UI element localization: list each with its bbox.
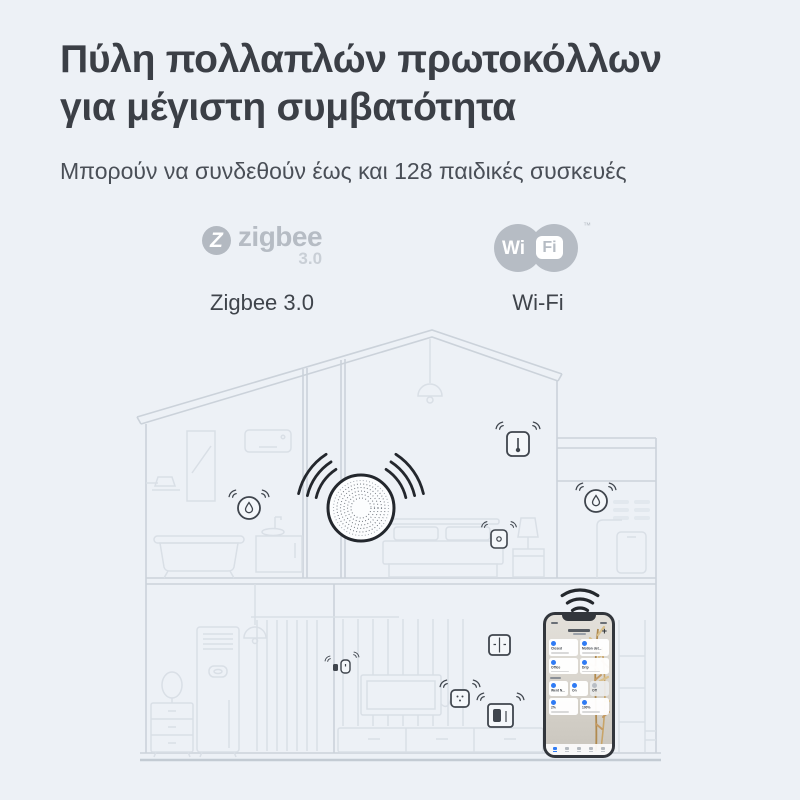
protocol-zigbee: Z zigbee 3.0 Zigbee 3.0: [182, 224, 342, 316]
water-leak-sensor-bathroom: [229, 490, 269, 519]
sink-bowl: [262, 529, 284, 536]
app-header: +: [549, 627, 609, 637]
device-icon: [551, 700, 556, 705]
tab-automation: [577, 747, 581, 753]
wifi-trademark: ™: [583, 221, 591, 230]
tab-scenes: [589, 747, 593, 753]
smart-cube-device: [477, 693, 524, 727]
water-leak-sensor-annex: [576, 483, 616, 512]
sensor-link-line: [441, 698, 451, 706]
motion-sensor-livingroom: [440, 680, 480, 707]
bed: [383, 519, 503, 577]
curtains: [257, 620, 317, 751]
protocol-logos-row: Z zigbee 3.0 Zigbee 3.0 Wi Fi ™ Wi-Fi: [0, 224, 800, 316]
smartphone: + Closed Motion det... Office Drip Went …: [543, 612, 615, 758]
protocol-wifi: Wi Fi ™ Wi-Fi: [458, 224, 618, 316]
dresser-mirror: [162, 672, 182, 698]
device-icon: [551, 683, 556, 688]
air-conditioner: [245, 430, 291, 452]
device-card: Motion det...: [580, 639, 609, 656]
tab-accessories: [565, 747, 569, 753]
add-device-icon: +: [602, 626, 607, 636]
smart-home-app: + Closed Motion det... Office Drip Went …: [546, 615, 612, 755]
device-card: Drip: [580, 658, 609, 675]
zigbee-logo: Z zigbee 3.0: [202, 224, 322, 282]
bathtub-rim: [154, 536, 244, 543]
app-tab-bar: [546, 744, 612, 755]
bathroom-mirror: [187, 431, 215, 501]
device-card: 2%: [549, 698, 578, 715]
house-illustration: [0, 318, 800, 800]
shelf-slats: [613, 500, 650, 520]
bookshelf: [619, 620, 656, 752]
wifi-wi-text: Wi: [502, 238, 525, 260]
phone-wifi-arcs: [562, 590, 598, 610]
wifi-logo: Wi Fi ™: [494, 224, 582, 272]
zigbee-word: zigbee: [238, 224, 322, 251]
status-bar: [549, 622, 609, 625]
floor-ac-unit: [197, 627, 239, 752]
device-card: 100%: [580, 698, 609, 715]
device-icon: [551, 641, 556, 646]
temperature-sensor: [496, 422, 540, 456]
bathtub-body: [160, 543, 238, 578]
zigbee-version: 3.0: [238, 251, 322, 267]
double-wall-switch: [489, 635, 510, 655]
device-icon: [551, 660, 556, 665]
floor-lamp: [518, 518, 538, 549]
phone-screen: + Closed Motion det... Office Drip Went …: [546, 615, 612, 755]
page-title: Πύλη πολλαπλών πρωτοκόλλωνγια μέγιστη συ…: [60, 36, 662, 131]
wifi-fi-text: Fi: [536, 236, 563, 259]
mini-sensor-pair-livingroom: [325, 652, 359, 673]
device-card: On: [570, 681, 589, 696]
device-card: Went N...: [549, 681, 568, 696]
wall-lamp: [146, 477, 180, 490]
water-heater: [617, 532, 646, 573]
device-icon: [582, 660, 587, 665]
title-line-1: Πύλη πολλαπλών πρωτοκόλλων: [60, 38, 662, 81]
device-card: Office: [549, 658, 578, 675]
device-icon: [572, 683, 577, 688]
phone-notch: [562, 615, 596, 621]
sink-faucet: [275, 517, 281, 529]
zigbee-label: Zigbee 3.0: [210, 290, 314, 316]
title-line-2: για μέγιστη συμβατότητα: [60, 86, 516, 129]
device-icon: [582, 641, 587, 646]
tv-stand: [338, 728, 543, 752]
device-card: Off: [590, 681, 609, 696]
zigbee-z-icon: Z: [202, 226, 231, 255]
device-card: Closed: [549, 639, 578, 656]
device-icon: [592, 683, 597, 688]
device-icon: [582, 700, 587, 705]
tab-profile: [601, 747, 605, 753]
section-divider: [550, 677, 561, 679]
tab-home: [553, 747, 557, 753]
zigbee-wordmark: zigbee 3.0: [238, 224, 322, 267]
nightstand: [513, 549, 544, 577]
zigbee-letter: Z: [210, 229, 223, 253]
wifi-label: Wi-Fi: [512, 290, 563, 316]
page-subtitle: Μπορούν να συνδεθούν έως και 128 παιδικέ…: [60, 158, 627, 185]
